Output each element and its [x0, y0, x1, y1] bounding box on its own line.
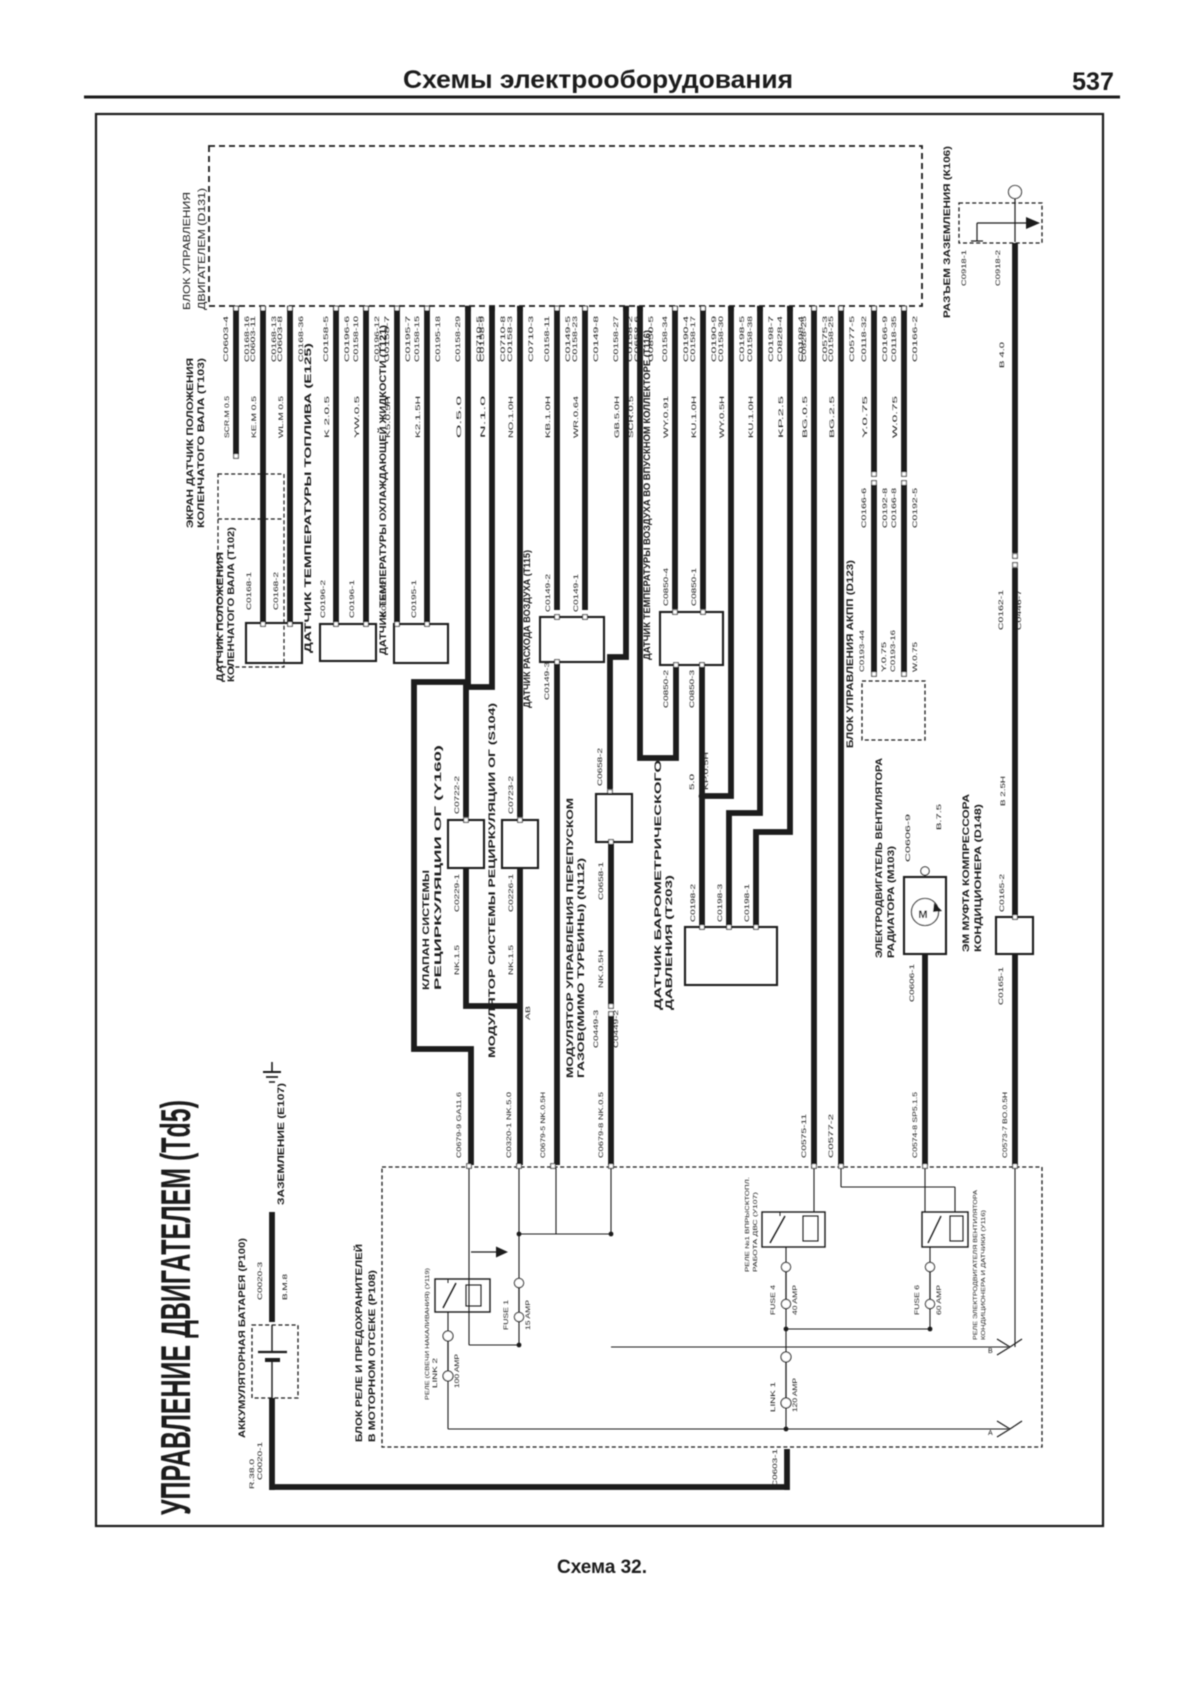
- svg-text:BG.0.5: BG.0.5: [802, 396, 809, 438]
- svg-text:C0158-34: C0158-34: [662, 316, 669, 362]
- svg-text:КОНДИЦИОНЕРА И ДАТЧИКИ (У116): КОНДИЦИОНЕРА И ДАТЧИКИ (У116): [981, 1210, 987, 1340]
- svg-text:N.1.0: N.1.0: [480, 395, 487, 438]
- svg-text:KP.2.5: KP.2.5: [778, 396, 785, 438]
- svg-text:LINK 2: LINK 2: [433, 1357, 439, 1388]
- svg-text:C0118-35: C0118-35: [891, 316, 898, 362]
- svg-text:КОНДИЦИОНЕРА (D148): КОНДИЦИОНЕРА (D148): [973, 804, 983, 952]
- svg-text:РЕЛЕ №1 ВПРЫСКТОПЛ.: РЕЛЕ №1 ВПРЫСКТОПЛ.: [745, 1176, 751, 1272]
- svg-text:NK.0.5H: NK.0.5H: [598, 950, 605, 988]
- svg-text:C0577-2: C0577-2: [828, 1114, 835, 1158]
- svg-text:C0918-2: C0918-2: [995, 250, 1002, 286]
- svg-text:РАДИАТОРА (М103): РАДИАТОРА (М103): [886, 846, 896, 958]
- svg-text:C0020-1: C0020-1: [257, 1442, 264, 1480]
- svg-text:C0193-44: C0193-44: [859, 630, 866, 672]
- svg-text:РАБОТА ДВС (У107): РАБОТА ДВС (У107): [753, 1192, 759, 1272]
- svg-text:C0198-7: C0198-7: [768, 316, 775, 362]
- svg-text:C0190-9: C0190-9: [711, 316, 718, 362]
- svg-text:537: 537: [1072, 68, 1114, 96]
- svg-text:C0192-5: C0192-5: [912, 488, 919, 528]
- svg-text:C0149-1: C0149-1: [573, 574, 580, 612]
- svg-text:C0658-2: C0658-2: [597, 748, 604, 786]
- svg-text:C0229-1: C0229-1: [454, 874, 461, 912]
- svg-text:C0679-8 NK.0.5: C0679-8 NK.0.5: [598, 1092, 605, 1158]
- svg-text:C0168-1: C0168-1: [246, 572, 253, 610]
- svg-text:GB.5.0H: GB.5.0H: [614, 396, 621, 438]
- svg-text:C0320-1 NK.5.0: C0320-1 NK.5.0: [506, 1092, 513, 1158]
- svg-text:C0158-25: C0158-25: [828, 316, 835, 362]
- svg-text:NK.1.5: NK.1.5: [508, 945, 515, 975]
- svg-text:ДАВЛЕНИЯ (Т203): ДАВЛЕНИЯ (Т203): [664, 875, 674, 1010]
- svg-text:РЕЦИРКУЛЯЦИИ ОГ (Y160): РЕЦИРКУЛЯЦИИ ОГ (Y160): [433, 745, 443, 990]
- svg-text:C0606-1: C0606-1: [909, 964, 916, 1002]
- svg-text:ДАТЧИК РАСХОДА ВОЗДУХА (Т115): ДАТЧИК РАСХОДА ВОЗДУХА (Т115): [522, 550, 532, 708]
- svg-text:FUSE 1: FUSE 1: [504, 1299, 510, 1330]
- svg-text:B.7.5: B.7.5: [936, 804, 943, 830]
- svg-text:C0165-1: C0165-1: [998, 967, 1005, 1005]
- svg-text:C0158-30: C0158-30: [718, 316, 725, 362]
- svg-text:FUSE 6: FUSE 6: [915, 1284, 921, 1315]
- svg-text:ЭЛЕКТРОДВИГАТЕЛЬ ВЕНТИЛЯТОРА: ЭЛЕКТРОДВИГАТЕЛЬ ВЕНТИЛЯТОРА: [874, 758, 884, 958]
- svg-text:NK.1.5: NK.1.5: [454, 945, 461, 975]
- svg-text:C0918-1: C0918-1: [961, 250, 968, 286]
- svg-text:C0195-7: C0195-7: [405, 316, 412, 362]
- svg-text:C0198-5: C0198-5: [739, 316, 746, 362]
- svg-text:C0574-8 SP5.1.5: C0574-8 SP5.1.5: [912, 1092, 919, 1158]
- svg-text:C0165-2: C0165-2: [999, 874, 1006, 912]
- svg-text:В: В: [988, 1348, 993, 1355]
- svg-text:C0198-3: C0198-3: [717, 884, 724, 922]
- svg-text:C0679-5 NK.0.5H: C0679-5 NK.0.5H: [540, 1092, 547, 1158]
- svg-text:C0158-3: C0158-3: [507, 316, 514, 362]
- svg-text:C0193-16: C0193-16: [890, 630, 897, 672]
- svg-text:C0449-2: C0449-2: [613, 1010, 620, 1048]
- svg-text:K 2.0.5: K 2.0.5: [324, 396, 331, 438]
- svg-text:КОЛЕНЧАТОГО ВАЛА (Т102): КОЛЕНЧАТОГО ВАЛА (Т102): [226, 527, 236, 682]
- svg-text:C0166-9: C0166-9: [882, 316, 889, 362]
- svg-text:B.M.8: B.M.8: [282, 1274, 289, 1300]
- svg-text:РЕЛЕ (СВЕЧИ НАКАЛИВАНИЯ) (У119: РЕЛЕ (СВЕЧИ НАКАЛИВАНИЯ) (У119): [425, 1268, 431, 1400]
- svg-text:ДВИГАТЕЛЕМ (D131): ДВИГАТЕЛЕМ (D131): [197, 188, 208, 310]
- svg-text:B 2.5H: B 2.5H: [1000, 776, 1007, 806]
- svg-text:KU.1.0H: KU.1.0H: [691, 396, 698, 438]
- svg-text:ЗАЗЕМЛЕНИЕ (Е107): ЗАЗЕМЛЕНИЕ (Е107): [276, 1083, 286, 1205]
- svg-text:ДАТЧИК ПОЛОЖЕНИЯ: ДАТЧИК ПОЛОЖЕНИЯ: [215, 552, 225, 682]
- svg-text:БЛОК УПРАВЛЕНИЯ АКПП (D123): БЛОК УПРАВЛЕНИЯ АКПП (D123): [845, 560, 855, 748]
- svg-text:C0149-3: C0149-3: [544, 662, 551, 700]
- svg-text:БЛОК УПРАВЛЕНИЯ: БЛОК УПРАВЛЕНИЯ: [182, 192, 193, 310]
- svg-text:Схема 32.: Схема 32.: [557, 1557, 647, 1578]
- svg-text:C0196-1: C0196-1: [349, 580, 356, 618]
- svg-text:C0850-1: C0850-1: [691, 568, 698, 606]
- svg-text:B 4.0: B 4.0: [999, 341, 1006, 368]
- svg-text:M: M: [918, 909, 927, 921]
- svg-text:C0158-27: C0158-27: [613, 316, 620, 362]
- svg-text:C0828-4: C0828-4: [777, 316, 784, 362]
- svg-text:WR.0.64: WR.0.64: [573, 396, 580, 438]
- svg-text:ГАЗОВ(МИМО ТУРБИНЫ) (N112): ГАЗОВ(МИМО ТУРБИНЫ) (N112): [576, 858, 586, 1078]
- svg-text:SCR.M 0.5: SCR.M 0.5: [224, 396, 231, 438]
- svg-text:YW.0.5: YW.0.5: [354, 396, 361, 438]
- svg-text:C0118-32: C0118-32: [861, 316, 868, 362]
- svg-text:W.0.75: W.0.75: [892, 396, 899, 438]
- svg-text:C0190-4: C0190-4: [683, 316, 690, 362]
- svg-text:40 AMP: 40 AMP: [793, 1285, 799, 1315]
- svg-text:ДАТЧИК ТЕМПЕРАТУРЫ ТОПЛИВА (Е1: ДАТЧИК ТЕМПЕРАТУРЫ ТОПЛИВА (Е125): [303, 343, 313, 653]
- svg-text:FUSE 4: FUSE 4: [771, 1284, 777, 1315]
- svg-text:KP.0.5H: KP.0.5H: [703, 752, 710, 790]
- svg-text:ЭМ МУФТА КОМПРЕССОРА: ЭМ МУФТА КОМПРЕССОРА: [961, 794, 971, 952]
- svg-text:BG.2.5: BG.2.5: [829, 396, 836, 438]
- svg-text:C0166-2: C0166-2: [912, 316, 919, 362]
- svg-text:C0603-4: C0603-4: [223, 316, 230, 362]
- svg-text:C0198-1: C0198-1: [744, 884, 751, 922]
- svg-text:5.0: 5.0: [689, 774, 696, 790]
- svg-text:C0710-3: C0710-3: [528, 316, 535, 362]
- svg-text:C0573-7 BO.0.5H: C0573-7 BO.0.5H: [1002, 1092, 1009, 1158]
- svg-text:KB.1.0H: KB.1.0H: [545, 396, 552, 438]
- svg-text:C0158-17: C0158-17: [690, 316, 697, 362]
- svg-text:C0195-2: C0195-2: [381, 580, 388, 618]
- svg-text:C0162-1: C0162-1: [998, 590, 1005, 630]
- svg-text:O.5.0: O.5.0: [456, 395, 463, 438]
- svg-text:C0722-2: C0722-2: [454, 776, 461, 814]
- svg-text:C0158-5: C0158-5: [323, 316, 330, 362]
- svg-text:УПРАВЛЕНИЕ ДВИГАТЕЛЕМ (Td5): УПРАВЛЕНИЕ ДВИГАТЕЛЕМ (Td5): [152, 1100, 199, 1515]
- svg-text:ЭКРАН ДАТЧИК ПОЛОЖЕНИЯ: ЭКРАН ДАТЧИК ПОЛОЖЕНИЯ: [185, 358, 195, 528]
- svg-text:K2.1.5H: K2.1.5H: [415, 396, 422, 438]
- svg-text:C0449-3: C0449-3: [593, 1010, 600, 1048]
- svg-text:WY.0.5H: WY.0.5H: [719, 396, 726, 438]
- svg-text:МОДУЛЯТОР УПРАВЛЕНИЯ ПЕРЕПУСКО: МОДУЛЯТОР УПРАВЛЕНИЯ ПЕРЕПУСКОМ: [565, 798, 575, 1078]
- svg-text:C0603-1: C0603-1: [772, 1449, 779, 1487]
- svg-text:ДАТЧИК БАРОМЕТРИЧЕСКОГО: ДАТЧИК БАРОМЕТРИЧЕСКОГО: [653, 760, 663, 1010]
- svg-text:R.38.0: R.38.0: [249, 1459, 256, 1489]
- svg-text:C0603-11: C0603-11: [250, 316, 257, 362]
- svg-text:C0196-6: C0196-6: [344, 316, 351, 362]
- svg-text:NO.1.0H: NO.1.0H: [508, 396, 515, 438]
- svg-text:C0577-5: C0577-5: [849, 316, 856, 362]
- svg-text:C0195-1: C0195-1: [411, 580, 418, 618]
- svg-text:C0603-8: C0603-8: [277, 316, 284, 362]
- svg-text:C0850-4: C0850-4: [663, 568, 670, 606]
- svg-text:C0195-18: C0195-18: [435, 316, 442, 362]
- svg-text:C0166-8: C0166-8: [891, 488, 898, 528]
- svg-text:C0166-6: C0166-6: [861, 488, 868, 528]
- svg-text:C0192-8: C0192-8: [882, 488, 889, 528]
- svg-text:C0606-9: C0606-9: [905, 814, 912, 862]
- svg-text:KE.M 0.5: KE.M 0.5: [251, 396, 258, 438]
- svg-text:60 AMP: 60 AMP: [937, 1285, 943, 1315]
- svg-text:C0158-10: C0158-10: [353, 316, 360, 362]
- svg-text:C0168-2: C0168-2: [273, 572, 280, 610]
- svg-text:C0020-3: C0020-3: [257, 1262, 264, 1300]
- svg-text:КЛАПАН СИСТЕМЫ: КЛАПАН СИСТЕМЫ: [421, 870, 431, 990]
- svg-text:120 AMP: 120 AMP: [793, 1378, 799, 1412]
- svg-text:C0226-1: C0226-1: [508, 874, 515, 912]
- svg-text:C0158-29: C0158-29: [455, 316, 462, 362]
- svg-text:В МОТОРНОМ ОТСЕКЕ (Р108): В МОТОРНОМ ОТСЕКЕ (Р108): [367, 1270, 377, 1442]
- svg-text:C0710-8: C0710-8: [500, 316, 507, 362]
- svg-text:LINK 1: LINK 1: [771, 1381, 777, 1412]
- svg-text:А: А: [988, 1430, 993, 1437]
- svg-text:C0158-9: C0158-9: [479, 316, 486, 362]
- svg-text:РЕЛЕ ЭЛЕКТРОДВИГАТЕЛЯ ВЕНТИЛЯТ: РЕЛЕ ЭЛЕКТРОДВИГАТЕЛЯ ВЕНТИЛЯТОРА: [973, 1190, 979, 1340]
- svg-text:БЛОК РЕЛЕ И ПРЕДОХРАНИТЕЛЕЙ: БЛОК РЕЛЕ И ПРЕДОХРАНИТЕЛЕЙ: [353, 1244, 364, 1442]
- svg-text:C0149-2: C0149-2: [545, 574, 552, 612]
- svg-text:C0149-5: C0149-5: [565, 316, 572, 362]
- svg-text:KU.1.0H: KU.1.0H: [748, 396, 755, 438]
- svg-text:АВ: АВ: [525, 1005, 532, 1020]
- svg-text:15 AMP: 15 AMP: [526, 1300, 532, 1330]
- svg-text:C0446-7: C0446-7: [1016, 590, 1023, 630]
- svg-text:C0679-9 GA11.6: C0679-9 GA11.6: [456, 1092, 463, 1158]
- svg-text:Y.0.75: Y.0.75: [862, 396, 869, 438]
- svg-text:100 AMP: 100 AMP: [455, 1354, 461, 1388]
- svg-text:WY.0.91: WY.0.91: [663, 396, 670, 438]
- svg-text:C0575-11: C0575-11: [801, 1114, 808, 1158]
- svg-text:C0158-23: C0158-23: [572, 316, 579, 362]
- svg-text:КОЛЕНЧАТОГО ВАЛА (Т103): КОЛЕНЧАТОГО ВАЛА (Т103): [196, 358, 206, 528]
- svg-text:C0723-2: C0723-2: [508, 776, 515, 814]
- svg-text:C0196-2: C0196-2: [320, 580, 327, 618]
- svg-text:Схемы электрооборудования: Схемы электрооборудования: [403, 66, 793, 94]
- svg-text:C0198-2: C0198-2: [690, 884, 697, 922]
- svg-text:WL.M 0.5: WL.M 0.5: [278, 396, 285, 438]
- svg-text:C0658-1: C0658-1: [598, 862, 605, 900]
- svg-text:C0828-25: C0828-25: [801, 316, 808, 362]
- svg-text:C0850-2: C0850-2: [663, 670, 670, 708]
- svg-text:Y.0.75: Y.0.75: [881, 642, 888, 672]
- svg-text:ДАТЧИК ТЕМПЕРАТУРЫ ВОЗДУХА ВО: ДАТЧИК ТЕМПЕРАТУРЫ ВОЗДУХА ВО ВПУСКНОМ К…: [642, 330, 652, 660]
- svg-text:РАЗЪЕМ ЗАЗЕМЛЕНИЯ (К106): РАЗЪЕМ ЗАЗЕМЛЕНИЯ (К106): [942, 146, 952, 318]
- svg-text:АККУМУЛЯТОРНАЯ БАТАРЕЯ (Р100): АККУМУЛЯТОРНАЯ БАТАРЕЯ (Р100): [237, 1238, 247, 1438]
- svg-text:C0158-38: C0158-38: [747, 316, 754, 362]
- svg-text:C0158-11: C0158-11: [544, 316, 551, 362]
- svg-text:C0149-8: C0149-8: [593, 316, 600, 362]
- svg-text:W.0.75: W.0.75: [912, 642, 919, 672]
- svg-text:SCR.0.5: SCR.0.5: [628, 396, 635, 438]
- svg-text:C0158-15: C0158-15: [414, 316, 421, 362]
- svg-text:C0850-3: C0850-3: [689, 670, 696, 708]
